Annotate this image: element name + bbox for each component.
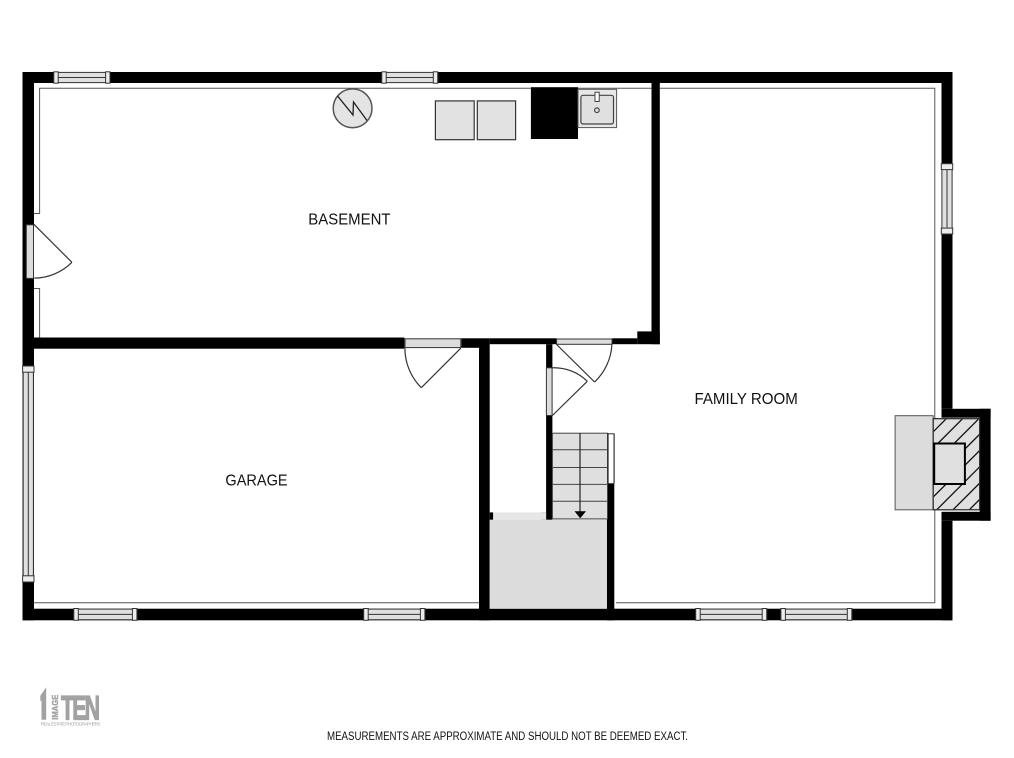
svg-text:FAMILY ROOM: FAMILY ROOM xyxy=(695,391,798,408)
svg-text:BASEMENT: BASEMENT xyxy=(308,212,391,229)
svg-text:GARAGE: GARAGE xyxy=(225,473,287,490)
svg-text:MEASUREMENTS ARE APPROXIMATE A: MEASUREMENTS ARE APPROXIMATE AND SHOULD … xyxy=(327,731,688,743)
svg-text:REAL ESTATE PHOTOGRAPHERS: REAL ESTATE PHOTOGRAPHERS xyxy=(41,721,101,726)
svg-text:IMAGE: IMAGE xyxy=(50,694,60,719)
